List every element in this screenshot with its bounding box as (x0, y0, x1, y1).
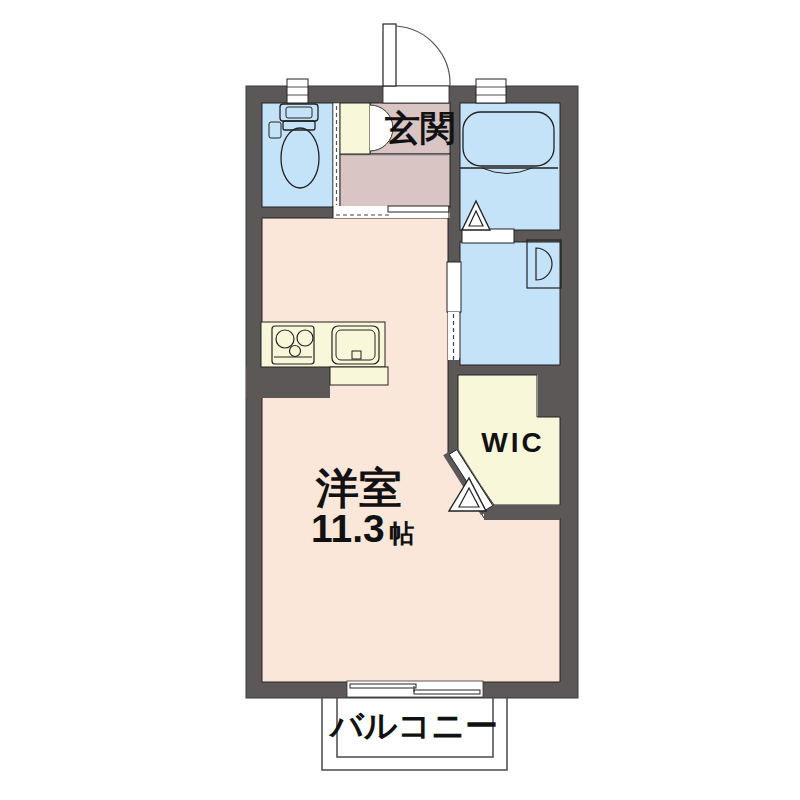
main-room-size-unit: 帖 (389, 519, 414, 547)
hall-floor (340, 154, 450, 207)
bathroom-door-opening (462, 229, 514, 243)
main-room-size-value: 11.3 (311, 507, 385, 550)
entrance-opening (383, 86, 449, 103)
hall-sliding-door (333, 206, 449, 218)
washroom (460, 242, 560, 365)
wic-label: WIC (481, 427, 544, 458)
wall-right (558, 86, 578, 698)
main-room-label: 洋室 (315, 464, 402, 512)
washroom-sliding-door (447, 262, 461, 360)
wall-wic-left (448, 375, 458, 457)
toilet-room (262, 103, 333, 207)
genkan-label: 玄関 (384, 108, 455, 147)
entrance-closet (340, 103, 370, 154)
wall-toilet-bottom (262, 207, 340, 218)
floor-plan-page: 玄関 WIC 洋室 11.3 帖 バルコニー (0, 0, 800, 800)
wall-wic-notch-block (538, 375, 560, 417)
balcony-label: バルコニー (328, 707, 498, 744)
bathroom-window (476, 79, 506, 103)
wall-wic-bottom (484, 505, 560, 520)
wall-washroom-left-upper (448, 218, 460, 263)
wall-washroom-bottom (448, 365, 560, 375)
floor-plan-svg: 玄関 WIC 洋室 11.3 帖 バルコニー (0, 0, 800, 800)
balcony-sliding-window (347, 681, 483, 697)
wall-kitchen-block (246, 367, 330, 398)
entrance-door-leaf (383, 24, 396, 86)
toilet-window (287, 79, 308, 103)
